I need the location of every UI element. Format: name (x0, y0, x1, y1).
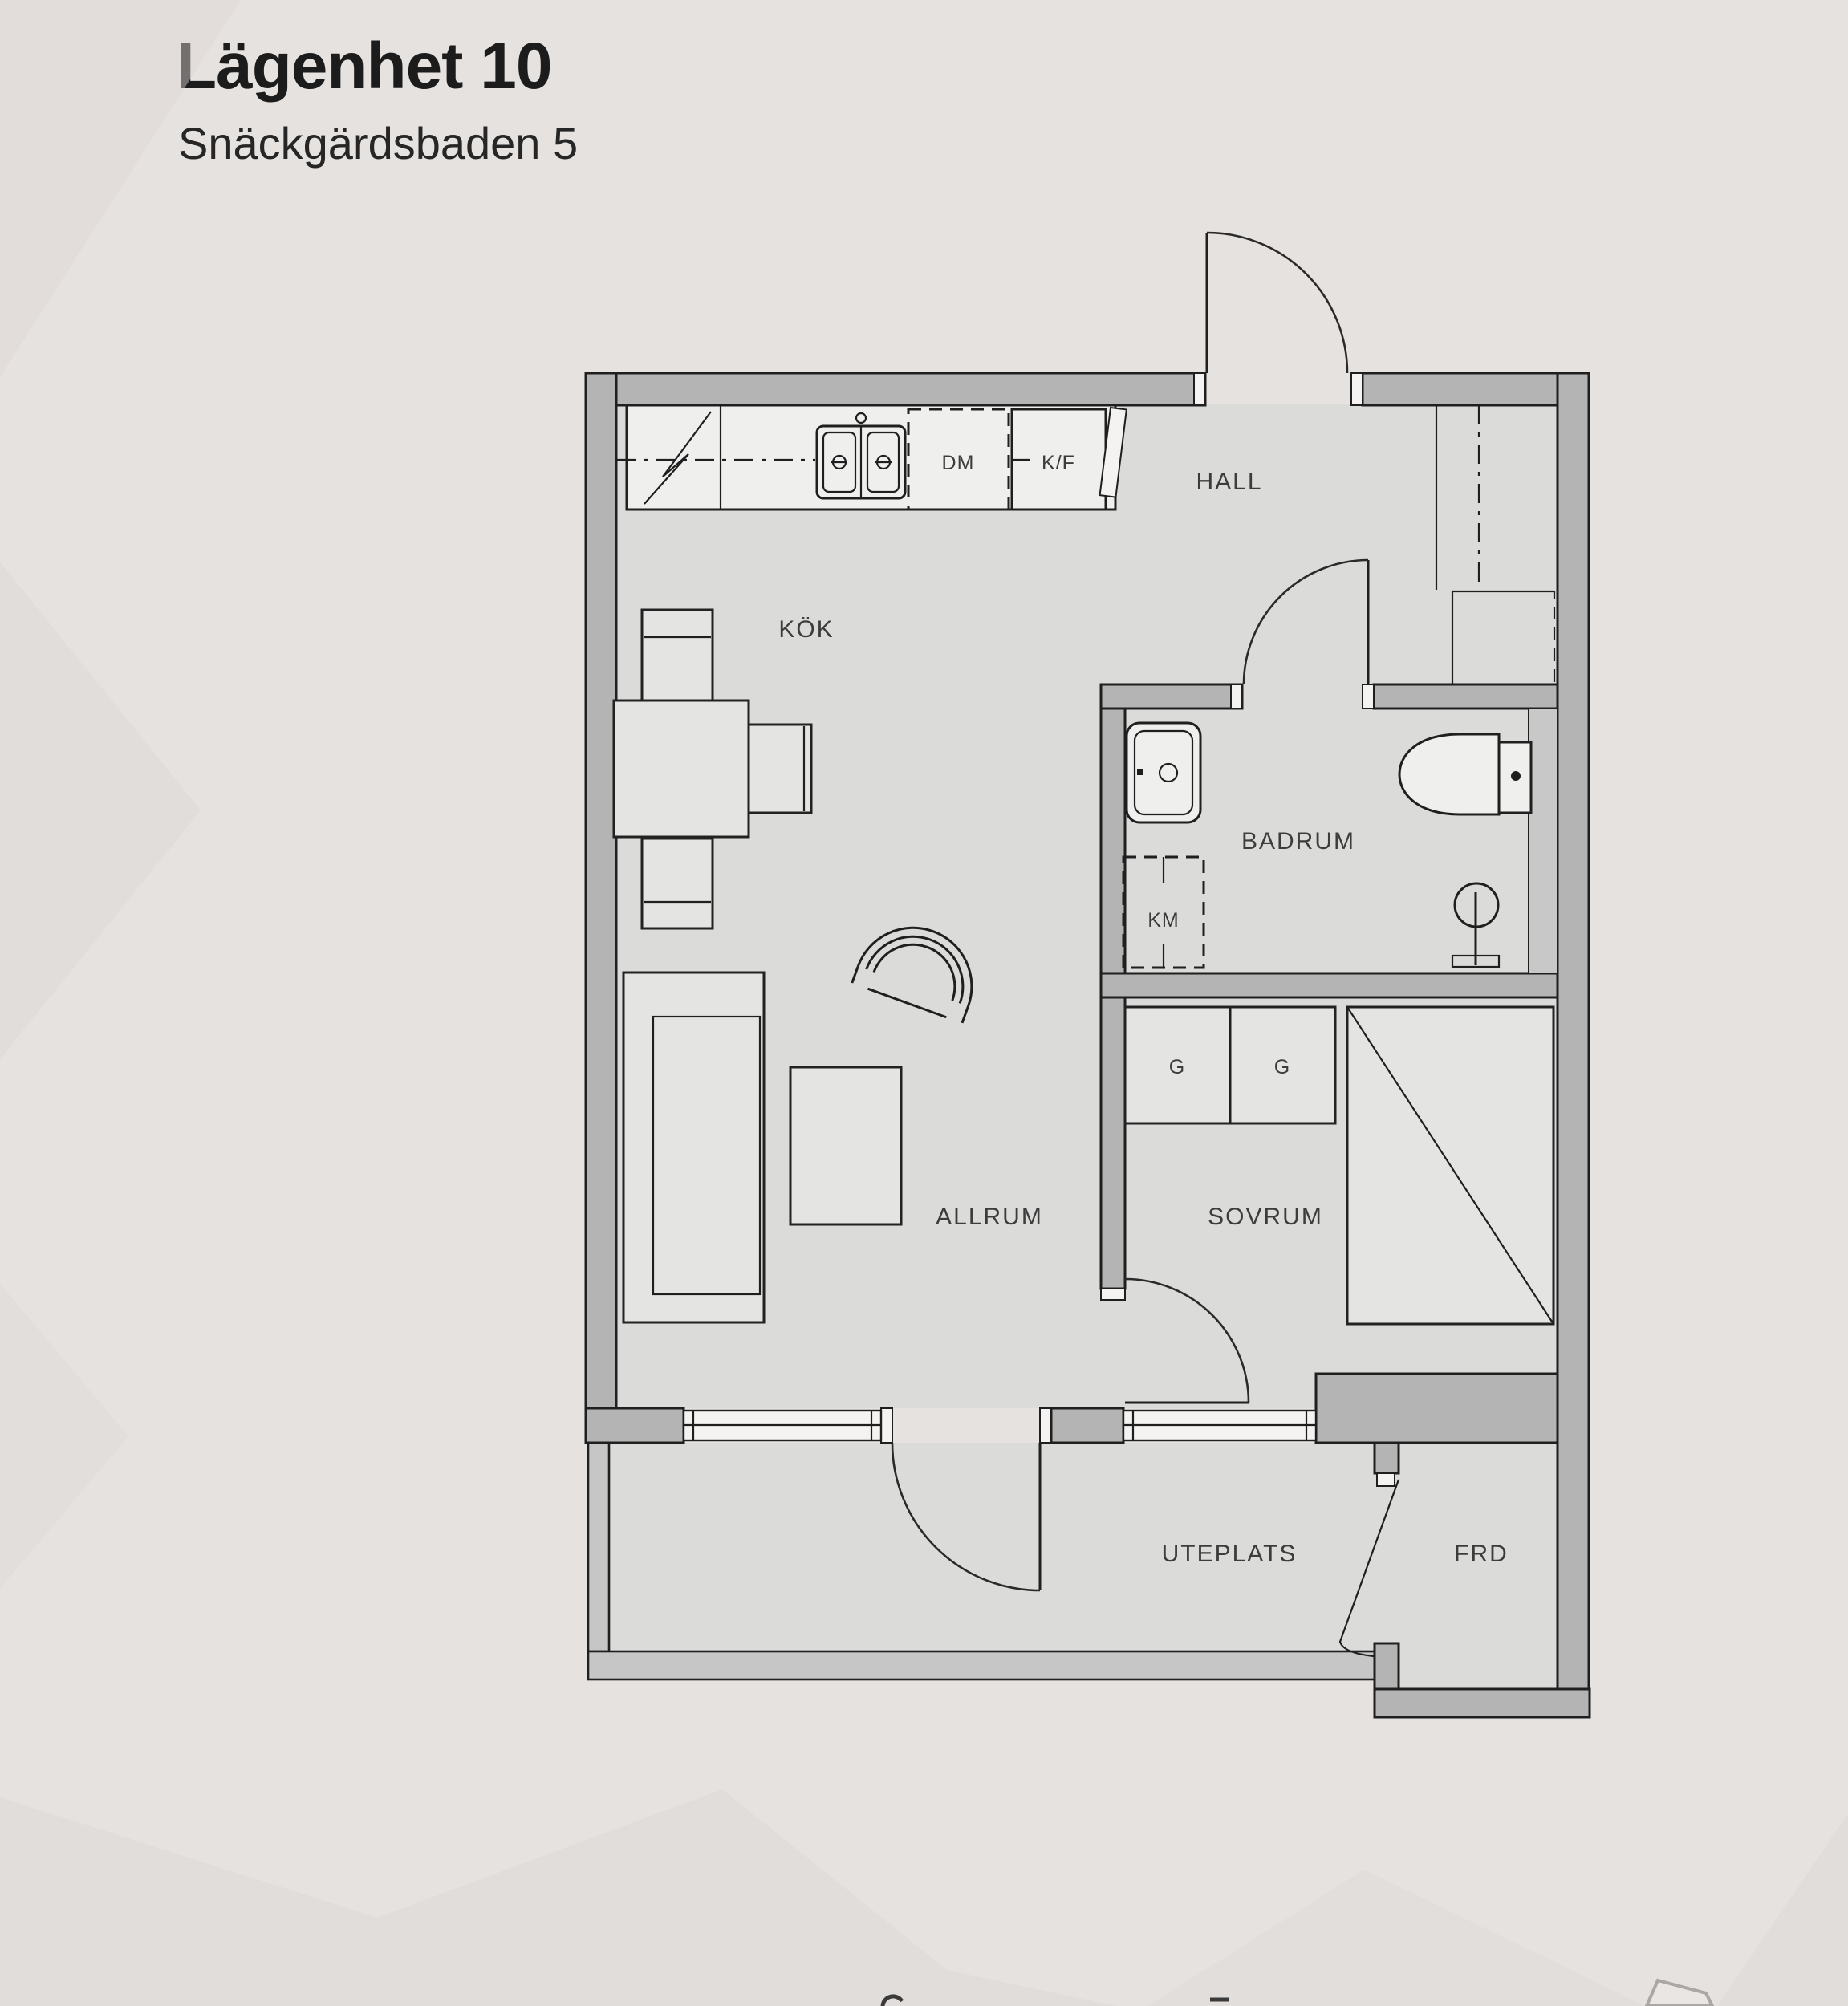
room-label-kok: KÖK (778, 616, 834, 643)
wall-top-right (1363, 373, 1589, 405)
window-sovrum (1123, 1411, 1316, 1440)
dining-table (614, 700, 749, 837)
wall-left (586, 373, 616, 1443)
wardrobes: G G (1125, 1007, 1335, 1123)
fridge-freezer-label: K/F (1042, 452, 1075, 474)
sovrum-doorpost (1101, 1289, 1125, 1300)
balcony-doorpost-right (1040, 1408, 1051, 1443)
frd-doorpost-top (1375, 1443, 1399, 1473)
wall-bottom-sovrum-frd (1316, 1374, 1558, 1443)
badrum-wall-top-right (1374, 684, 1558, 709)
wall-right (1558, 373, 1589, 1717)
badrum-wall-left (1101, 684, 1125, 997)
entry-doorpost-right (1351, 373, 1363, 405)
floorplan-drawing: DM K/F (0, 0, 1848, 2006)
wardrobe-label-2: G (1274, 1056, 1290, 1078)
balcony-doorpost-left (881, 1408, 892, 1443)
wardrobe-label-1: G (1169, 1056, 1185, 1078)
toilet-icon (1399, 734, 1531, 814)
wall-bottom-b (1051, 1408, 1123, 1443)
wall-top-left (586, 373, 1205, 405)
wall-bottom-a (586, 1408, 684, 1443)
entry-doorpost-left (1194, 373, 1205, 405)
bed (1347, 1007, 1554, 1324)
entry-door (1207, 233, 1347, 373)
floorplan-page: Lägenhet 10 Snäckgärdsbaden 5 (0, 0, 1848, 2006)
window-allrum (684, 1411, 881, 1440)
sovrum-wall-left (1101, 997, 1125, 1289)
dining-chair-bottom (642, 839, 713, 928)
room-label-hall: HALL (1196, 469, 1262, 495)
badrum-wall-top-left (1101, 684, 1242, 709)
kitchen-counter: DM K/F (616, 405, 1127, 510)
dining-chair-right (749, 725, 811, 813)
room-label-badrum: BADRUM (1241, 828, 1355, 855)
bathroom-sink-icon (1127, 723, 1200, 822)
coffee-table (790, 1067, 901, 1224)
room-label-uteplats: UTEPLATS (1162, 1541, 1298, 1567)
frd-wall-bottom (1375, 1689, 1590, 1717)
frd-doorpost-notch (1377, 1473, 1395, 1486)
room-label-sovrum: SOVRUM (1208, 1204, 1323, 1230)
room-label-allrum: ALLRUM (936, 1204, 1043, 1230)
dining-chair-top (642, 610, 713, 701)
badrum-doorpost-left (1231, 684, 1242, 709)
sofa (623, 973, 764, 1322)
watermark-outline-chevron (1647, 1980, 1712, 2006)
uteplats-wall-bottom (588, 1651, 1375, 1679)
badrum-wall-bottom (1101, 973, 1558, 997)
badrum-doorpost-right (1363, 684, 1374, 709)
washing-machine-label: KM (1147, 909, 1180, 932)
windows (684, 1411, 1316, 1440)
room-label-frd: FRD (1454, 1541, 1509, 1567)
bathroom-shaft (1529, 709, 1558, 973)
dishwasher-label: DM (942, 452, 975, 474)
uteplats-wall-left (588, 1443, 609, 1651)
kitchen-sink-icon (817, 413, 905, 498)
